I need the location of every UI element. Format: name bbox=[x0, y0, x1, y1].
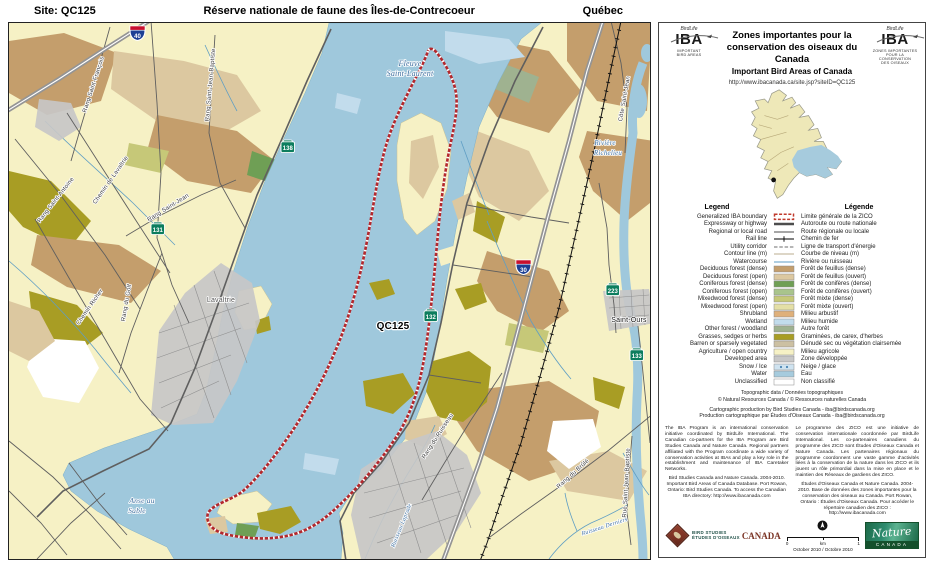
legend-label-en: Water bbox=[665, 371, 769, 377]
legend-label-fr: Milieu arbustif bbox=[799, 311, 919, 317]
iba-logo-english: BirdLife IBA IMPORTANT BIRD AREAS bbox=[665, 27, 713, 57]
legend-row-watercourse: WatercourseRivière ou ruisseau bbox=[665, 258, 919, 266]
route-shield-138: 138 bbox=[281, 140, 295, 153]
legend-label-fr: Route régionale ou locale bbox=[799, 229, 919, 235]
legend-label-en: Contour line (m) bbox=[665, 251, 769, 257]
about-paragraph-en: The IBA Program is an international cons… bbox=[665, 426, 789, 473]
panel-header: BirdLife IBA IMPORTANT BIRD AREAS Zones … bbox=[665, 27, 919, 76]
map-label-qc125: QC125 bbox=[377, 321, 410, 332]
citation-fr: Études d'Oiseaux Canada et Nature Canada… bbox=[796, 482, 920, 517]
iba-acronym: IBA bbox=[881, 32, 908, 48]
legend-label-en: Coniferous forest (dense) bbox=[665, 281, 769, 287]
legend-row-shrubland: ShrublandMilieu arbustif bbox=[665, 310, 919, 318]
map-label-anse-au: Anse au bbox=[128, 496, 154, 505]
panel-title: Zones importantes pour la conservation d… bbox=[713, 27, 871, 76]
legend-heading-en: Legend bbox=[665, 204, 769, 211]
svg-text:132: 132 bbox=[426, 315, 437, 321]
site-location-dot bbox=[771, 177, 776, 182]
legend-label-fr: Forêt mixte (ouvert) bbox=[799, 304, 919, 310]
legend-label-en: Mixedwood forest (open) bbox=[665, 304, 769, 310]
iba-map-sheet: Site: QC125 Réserve nationale de faune d… bbox=[0, 0, 934, 568]
about-paragraph-fr: Le programme des ZICO est une initiative… bbox=[796, 426, 920, 479]
carto-credit-2: Production cartographique par Études d'O… bbox=[665, 413, 919, 420]
legend-row-deciduous-forest-open-: Deciduous forest (open)Forêt de feuillus… bbox=[665, 273, 919, 281]
legend-label-fr: Non classifié bbox=[799, 379, 919, 385]
legend-label-fr: Limite générale de la ZICO bbox=[799, 214, 919, 220]
legend-label-fr: Forêt mixte (dense) bbox=[799, 296, 919, 302]
map-label-saint-laurent: Saint-Laurent bbox=[387, 69, 434, 78]
north-compass-icon bbox=[817, 520, 828, 531]
legend-label-en: Developed area bbox=[665, 356, 769, 362]
legend-rows: Generalized IBA boundaryLimite générale … bbox=[665, 213, 919, 386]
legend-row-rail-line: Rail lineChemin de fer bbox=[665, 235, 919, 243]
legend-label-fr: Dénudé sec ou végétation clairsemée bbox=[799, 341, 919, 347]
legend-label-en: Snow / Ice bbox=[665, 364, 769, 370]
map-label-sable: Sable bbox=[128, 506, 146, 515]
nature-canada-logo: Nature CANADA bbox=[865, 522, 919, 549]
legend-label-en: Other forest / woodland bbox=[665, 326, 769, 332]
citation-en: Bird Studies Canada and Nature Canada. 2… bbox=[665, 476, 789, 500]
scale-bar-line bbox=[787, 537, 859, 541]
site-code: Site: QC125 bbox=[34, 5, 96, 17]
legend-row-barren-or-sparsely-vegetated: Barren or sparsely vegetatedDénudé sec o… bbox=[665, 340, 919, 348]
legend-swatch bbox=[769, 378, 799, 386]
legend-label-en: Regional or local road bbox=[665, 229, 769, 235]
legend-heading-fr: Légende bbox=[799, 204, 919, 211]
legend-row-generalized-iba-boundary: Generalized IBA boundaryLimite générale … bbox=[665, 213, 919, 221]
legend-row-other-forest-woodland: Other forest / woodlandAutre forêt bbox=[665, 325, 919, 333]
legend-headings: Legend Légende bbox=[665, 204, 919, 211]
autoroute-shield-30: 30 bbox=[516, 260, 531, 275]
legend-label-en: Barren or sparsely vegetated bbox=[665, 341, 769, 347]
svg-text:133: 133 bbox=[632, 354, 643, 360]
map-label-lavaltrie: Lavaltrie bbox=[207, 297, 235, 304]
legend-label-fr: Zone développée bbox=[799, 356, 919, 362]
legend-label-en: Grasses, sedges or herbs bbox=[665, 334, 769, 340]
panel-footer: BIRD STUDIES ÉTUDES D'OISEAUX CANADA 0 k… bbox=[665, 519, 919, 555]
province-label: Québec bbox=[583, 5, 623, 17]
topographic-map: 4030138131132223133 FleuveSaint-LaurentQ… bbox=[8, 22, 651, 560]
map-label-rivi-re: Rivière bbox=[593, 139, 615, 147]
legend-row-deciduous-forest-dense-: Deciduous forest (dense)Forêt de feuillu… bbox=[665, 265, 919, 273]
legend-row-grasses-sedges-or-herbs: Grasses, sedges or herbsGraminées, de ca… bbox=[665, 333, 919, 341]
map-canvas: 4030138131132223133 FleuveSaint-LaurentQ… bbox=[9, 23, 650, 559]
legend-row-utility-corridor: Utility corridorLigne de transport d'éne… bbox=[665, 243, 919, 251]
legend-label-fr: Forêt de conifères (ouvert) bbox=[799, 289, 919, 295]
legend-label-en: Rail line bbox=[665, 236, 769, 242]
map-label-saint-ours: Saint-Ours bbox=[611, 317, 647, 324]
legend-label-fr: Eau bbox=[799, 371, 919, 377]
legend-row-coniferous-forest-open-: Coniferous forest (open)Forêt de conifèr… bbox=[665, 288, 919, 296]
route-shield-223: 223 bbox=[606, 283, 620, 296]
legend-row-wetland: WetlandMilieu humide bbox=[665, 318, 919, 326]
legend-label-fr: Forêt de feuillus (ouvert) bbox=[799, 274, 919, 280]
page-title: Réserve nationale de faune des Îles-de-C… bbox=[96, 5, 583, 17]
legend-label-fr: Neige / glace bbox=[799, 364, 919, 370]
legend-label-en: Coniferous forest (open) bbox=[665, 289, 769, 295]
info-panel: BirdLife IBA IMPORTANT BIRD AREAS Zones … bbox=[658, 22, 926, 558]
route-shield-133: 133 bbox=[630, 348, 644, 361]
legend-label-fr: Milieu agricole bbox=[799, 349, 919, 355]
topo-credit-1: Topographic data / Données topographique… bbox=[665, 390, 919, 397]
legend-row-unclassified: UnclassifiedNon classifié bbox=[665, 378, 919, 386]
program-description: The IBA Program is an international cons… bbox=[665, 426, 919, 517]
legend-label-fr: Graminées, de carex, d'herbes bbox=[799, 334, 919, 340]
legend-label-en: Shrubland bbox=[665, 311, 769, 317]
legend-row-water: WaterEau bbox=[665, 370, 919, 378]
bird-swoosh-icon bbox=[669, 33, 719, 45]
svg-text:30: 30 bbox=[520, 268, 527, 274]
legend-label-fr: Chemin de fer bbox=[799, 236, 919, 242]
legend-label-en: Watercourse bbox=[665, 259, 769, 265]
legend-row-mixedwood-forest-open-: Mixedwood forest (open)Forêt mixte (ouve… bbox=[665, 303, 919, 311]
legend-row-snow-ice: Snow / IceNeige / glace bbox=[665, 363, 919, 371]
quebec-inset-map bbox=[665, 88, 919, 202]
legend-label-fr: Courbe de niveau (m) bbox=[799, 251, 919, 257]
legend-row-contour-line-m-: Contour line (m)Courbe de niveau (m) bbox=[665, 250, 919, 258]
legend-label-fr: Milieu humide bbox=[799, 319, 919, 325]
legend-label-en: Expressway or highway bbox=[665, 221, 769, 227]
bird-studies-canada-logo: BIRD STUDIES ÉTUDES D'OISEAUX CANADA bbox=[665, 523, 781, 548]
legend-label-en: Generalized IBA boundary bbox=[665, 214, 769, 220]
map-label-fleuve: Fleuve bbox=[398, 59, 422, 68]
legend-label-en: Agriculture / open country bbox=[665, 349, 769, 355]
map-label-richelieu: Richelieu bbox=[593, 149, 623, 157]
legend-label-en: Utility corridor bbox=[665, 244, 769, 250]
quebec-outline bbox=[739, 88, 845, 202]
legend-label-en: Deciduous forest (dense) bbox=[665, 266, 769, 272]
legend-label-en: Deciduous forest (open) bbox=[665, 274, 769, 280]
legend-label-fr: Ligne de transport d'énergie bbox=[799, 244, 919, 250]
legend-row-developed-area: Developed areaZone développée bbox=[665, 355, 919, 363]
data-credits: Topographic data / Données topographique… bbox=[665, 390, 919, 423]
legend-label-fr: Autre forêt bbox=[799, 326, 919, 332]
legend-row-expressway-or-highway: Expressway or highwayAutoroute ou route … bbox=[665, 220, 919, 228]
legend-label-en: Unclassified bbox=[665, 379, 769, 385]
bird-diamond-icon bbox=[665, 524, 689, 548]
legend-label-fr: Forêt de feuillus (dense) bbox=[799, 266, 919, 272]
svg-text:138: 138 bbox=[283, 146, 294, 152]
map-header: Site: QC125 Réserve nationale de faune d… bbox=[8, 0, 651, 22]
topo-credit-2: © Natural Resources Canada / © Ressource… bbox=[665, 397, 919, 404]
legend-label-fr: Autoroute ou route nationale bbox=[799, 221, 919, 227]
legend-row-agriculture-open-country: Agriculture / open countryMilieu agricol… bbox=[665, 348, 919, 356]
scale-bar: 0 km 1 October 2010 / Octobre 2010 bbox=[786, 519, 860, 553]
iba-acronym: IBA bbox=[675, 32, 702, 48]
legend-label-en: Wetland bbox=[665, 319, 769, 325]
legend-row-regional-or-local-road: Regional or local roadRoute régionale ou… bbox=[665, 228, 919, 236]
svg-text:131: 131 bbox=[153, 228, 164, 234]
legend-label-fr: Forêt de conifères (dense) bbox=[799, 281, 919, 287]
bird-swoosh-icon bbox=[875, 33, 925, 45]
legend-label-en: Mixedwood forest (dense) bbox=[665, 296, 769, 302]
route-shield-131: 131 bbox=[151, 222, 165, 235]
iba-logo-french: BirdLife IBA ZONES IMPORTANTES POUR LA C… bbox=[871, 27, 919, 65]
legend-row-mixedwood-forest-dense-: Mixedwood forest (dense)Forêt mixte (den… bbox=[665, 295, 919, 303]
legend-row-coniferous-forest-dense-: Coniferous forest (dense)Forêt de conifè… bbox=[665, 280, 919, 288]
legend-label-fr: Rivière ou ruisseau bbox=[799, 259, 919, 265]
legend: Legend Légende Generalized IBA boundaryL… bbox=[665, 204, 919, 386]
autoroute-shield-40: 40 bbox=[130, 26, 145, 41]
site-url[interactable]: http://www.ibacanada.ca/site.jsp?siteID=… bbox=[665, 80, 919, 86]
svg-text:40: 40 bbox=[134, 34, 141, 40]
route-shield-132: 132 bbox=[424, 309, 438, 322]
map-date: October 2010 / Octobre 2010 bbox=[786, 548, 860, 553]
svg-text:223: 223 bbox=[608, 289, 619, 295]
